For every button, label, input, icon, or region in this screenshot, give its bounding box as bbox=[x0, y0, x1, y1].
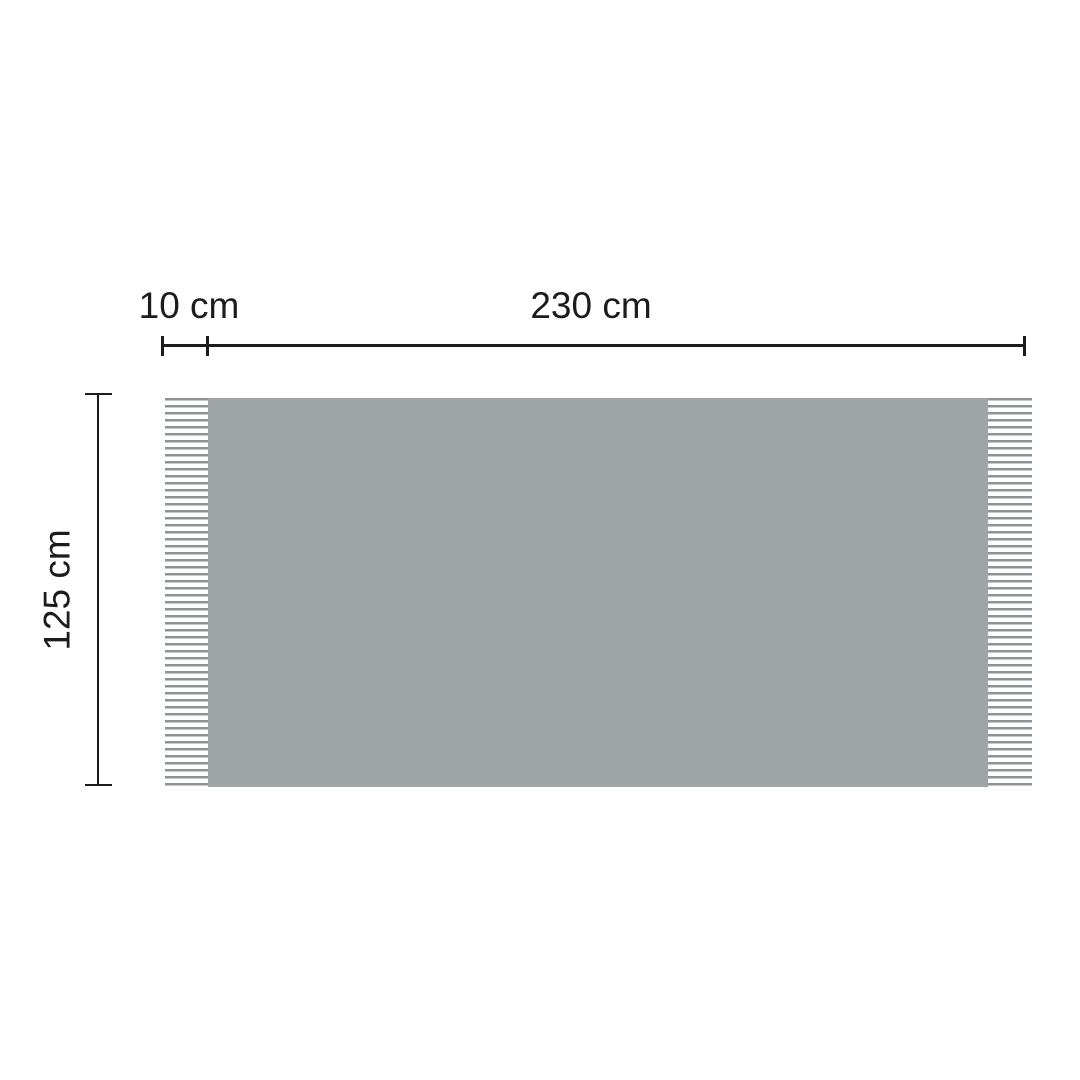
fringe-width-label: 10 cm bbox=[139, 287, 240, 324]
dimension-tick-top-end bbox=[85, 393, 112, 395]
dimension-tick-left-end bbox=[161, 336, 164, 356]
dimension-tick-fringe-boundary bbox=[206, 336, 209, 356]
dimension-tick-right-end bbox=[1023, 336, 1026, 356]
blanket-fringe-left bbox=[165, 398, 208, 787]
body-height-label: 125 cm bbox=[39, 529, 76, 650]
vertical-dimension-line bbox=[97, 394, 99, 785]
horizontal-dimension-line bbox=[163, 344, 1026, 347]
blanket-body bbox=[208, 398, 988, 787]
dimension-tick-bottom-end bbox=[85, 784, 112, 786]
blanket-dimension-diagram: 10 cm 230 cm 125 cm bbox=[0, 0, 1080, 1080]
body-width-label: 230 cm bbox=[530, 287, 651, 324]
blanket-fringe-right bbox=[988, 398, 1032, 787]
